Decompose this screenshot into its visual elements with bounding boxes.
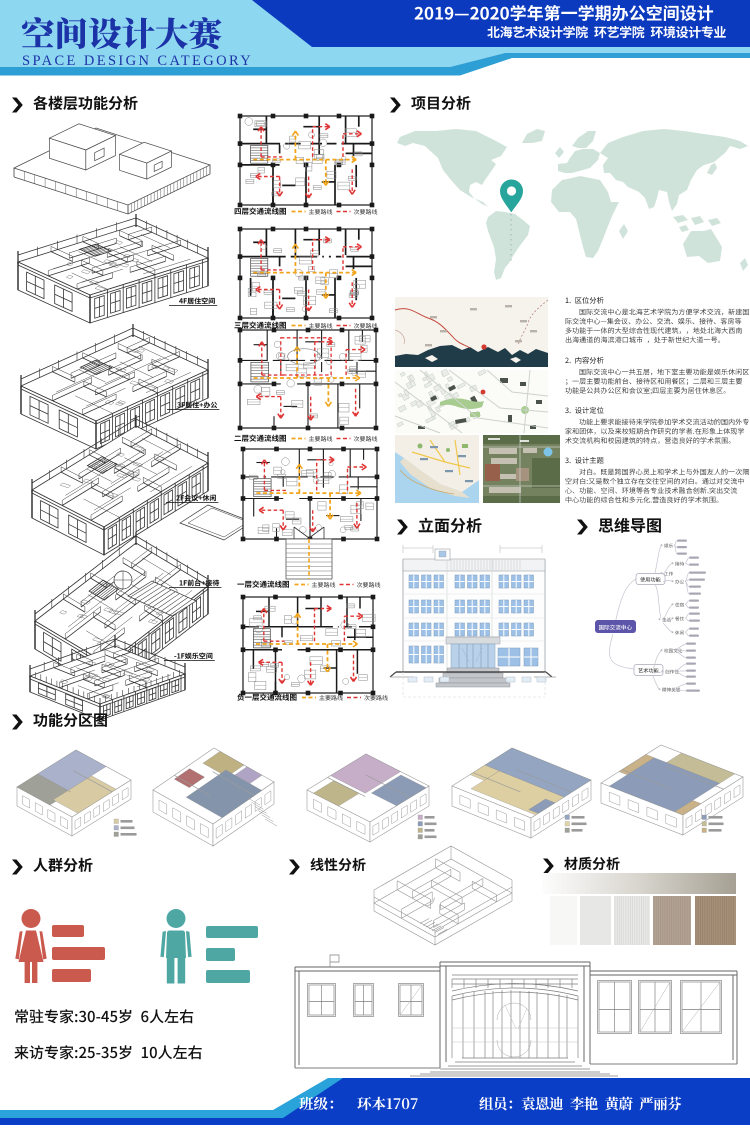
- svg-text:SPACE DESIGN CATEGORY: SPACE DESIGN CATEGORY: [22, 53, 253, 69]
